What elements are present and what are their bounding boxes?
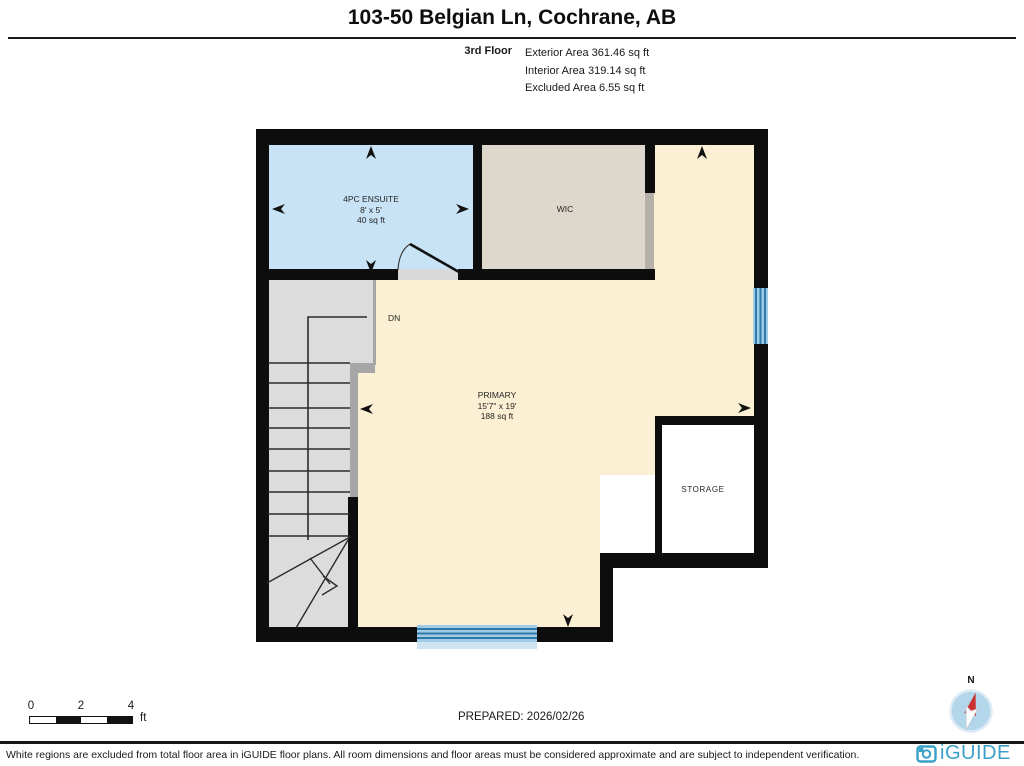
floorplan-page: 103-50 Belgian Ln, Cochrane, AB 3rd Floo… (0, 0, 1024, 766)
scale-tick-4: 4 (123, 700, 139, 712)
ensuite-area: 40 sq ft (295, 215, 447, 226)
exterior-area-line: Exterior Area 361.46 sq ft (525, 45, 649, 63)
stair-winder-lines (267, 537, 350, 628)
arrow-left-primary (360, 404, 373, 414)
ensuite-dims: 8' x 5' (295, 205, 447, 216)
scale-segment (107, 717, 133, 723)
window-bottom-sill (417, 642, 537, 649)
arrow-down-ensuite (366, 260, 376, 273)
storage-label: STORAGE (650, 485, 756, 496)
floor-label: 3rd Floor (430, 45, 512, 57)
scale-unit: ft (140, 712, 146, 724)
scale-segment (81, 717, 107, 723)
scale-bar-strip (29, 716, 133, 724)
scale-segment (30, 717, 56, 723)
address-title: 103-50 Belgian Ln, Cochrane, AB (0, 6, 1024, 30)
interior-area-line: Interior Area 319.14 sq ft (525, 63, 649, 81)
ensuite-door (398, 244, 459, 272)
arrow-up-ensuite (366, 146, 376, 159)
arrow-right-primary (738, 403, 751, 413)
footer-disclaimer: White regions are excluded from total fl… (6, 749, 859, 761)
stairs-dn-label: DN (388, 313, 412, 324)
primary-name: PRIMARY (422, 390, 572, 401)
ensuite-name: 4PC ENSUITE (295, 194, 447, 205)
primary-area: 188 sq ft (422, 411, 572, 422)
primary-dims: 15'7" x 19' (422, 401, 572, 412)
arrow-right-ensuite (456, 204, 469, 214)
iguide-logo-text: iGUIDE (940, 742, 1011, 765)
prepared-date: PREPARED: 2026/02/26 (458, 711, 584, 723)
scale-segment (56, 717, 82, 723)
header-divider (8, 37, 1016, 39)
arrow-down-primary (563, 614, 573, 627)
scale-tick-0: 0 (23, 700, 39, 712)
iguide-logo: iGUIDE (916, 743, 1011, 764)
primary-label-block: PRIMARY 15'7" x 19' 188 sq ft (422, 390, 572, 422)
area-summary: Exterior Area 361.46 sq ft Interior Area… (525, 45, 649, 98)
wic-label: WIC (520, 204, 610, 215)
arrow-left-ensuite (272, 204, 285, 214)
compass-north-label: N (961, 675, 981, 686)
footer-divider (0, 741, 1024, 744)
excluded-area-line: Excluded Area 6.55 sq ft (525, 80, 649, 98)
ensuite-label-block: 4PC ENSUITE 8' x 5' 40 sq ft (295, 194, 447, 226)
arrow-up-primary (697, 146, 707, 159)
compass-rose-icon (944, 687, 1000, 737)
iguide-camera-icon (916, 745, 937, 763)
scale-tick-2: 2 (73, 700, 89, 712)
